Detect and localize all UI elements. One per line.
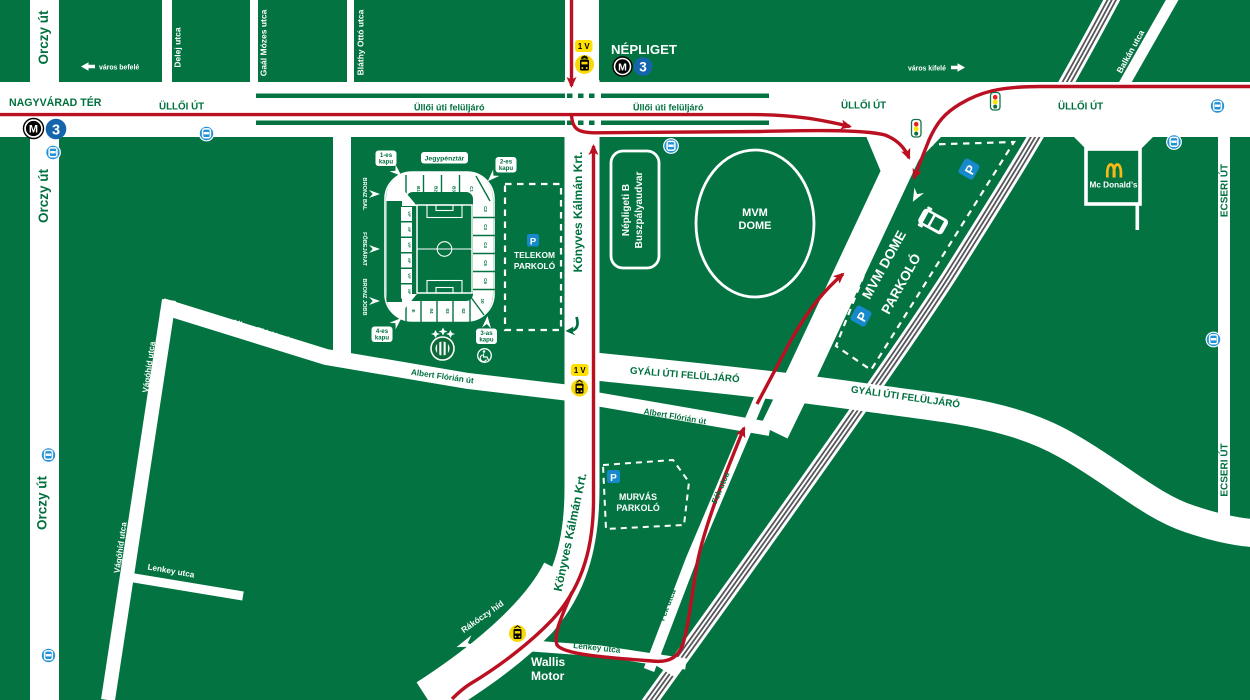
svg-text:BRONZ JOBB: BRONZ JOBB [361, 279, 367, 316]
svg-text:Könyves Kálmán Krt.: Könyves Kálmán Krt. [571, 152, 585, 273]
svg-text:P: P [530, 237, 537, 248]
svg-text:ÜLLŐI ÚT: ÜLLŐI ÚT [1058, 101, 1103, 113]
svg-text:Orczy út: Orczy út [36, 10, 51, 65]
svg-text:MURVÁS: MURVÁS [619, 492, 657, 502]
svg-text:04: 04 [429, 308, 434, 314]
svg-text:1 V: 1 V [574, 366, 587, 375]
svg-text:város kifelé: város kifelé [908, 65, 946, 72]
svg-text:Buszpályaudvar: Buszpályaudvar [634, 172, 645, 249]
svg-text:Mc Donald’s: Mc Donald’s [1090, 181, 1138, 190]
svg-text:FŐBEJÁRAT: FŐBEJÁRAT [361, 232, 368, 266]
svg-text:02: 02 [461, 308, 466, 314]
svg-text:P: P [610, 473, 617, 484]
svg-text:VIP: VIP [407, 289, 411, 295]
svg-text:C6: C6 [483, 278, 488, 284]
svg-text:VIP: VIP [407, 211, 411, 217]
svg-text:Orczy út: Orczy út [36, 168, 51, 223]
svg-text:M: M [618, 61, 627, 73]
svg-text:Orczy út: Orczy út [35, 475, 50, 530]
svg-text:Üllői úti felüljáró: Üllői úti felüljáró [414, 103, 485, 113]
svg-text:3: 3 [52, 123, 60, 139]
svg-text:város befelé: város befelé [99, 64, 139, 71]
svg-text:NAGYVÁRAD TÉR: NAGYVÁRAD TÉR [9, 96, 102, 109]
svg-text:3: 3 [639, 60, 647, 75]
svg-text:Népligeti B: Népligeti B [621, 184, 632, 236]
svg-text:VIP: VIP [407, 227, 411, 233]
svg-text:E: E [411, 309, 416, 312]
svg-text:B3: B3 [452, 186, 457, 192]
svg-text:ECSERI ÚT: ECSERI ÚT [1218, 443, 1231, 496]
svg-text:BRONZ BAL: BRONZ BAL [361, 178, 367, 212]
svg-text:C5: C5 [483, 260, 488, 266]
svg-text:Bláthy Ottó utca: Bláthy Ottó utca [356, 9, 366, 75]
svg-text:kapu: kapu [379, 159, 394, 166]
svg-text:VIP: VIP [407, 273, 411, 279]
svg-text:Gaál Mózes utca: Gaál Mózes utca [259, 9, 269, 76]
svg-text:C3: C3 [483, 224, 488, 230]
svg-text:03: 03 [445, 308, 450, 314]
svg-text:C2: C2 [483, 206, 488, 212]
svg-text:Delej utca: Delej utca [173, 27, 183, 67]
svg-text:ECSERI ÚT: ECSERI ÚT [1218, 164, 1231, 217]
svg-text:B2: B2 [434, 186, 439, 192]
svg-text:1 V: 1 V [578, 42, 591, 51]
svg-text:C4: C4 [483, 242, 488, 248]
svg-text:PARKOLÓ: PARKOLÓ [616, 502, 659, 513]
svg-text:B1: B1 [416, 186, 421, 192]
svg-text:kapu: kapu [499, 165, 514, 172]
svg-text:ÜLLŐI ÚT: ÜLLŐI ÚT [841, 100, 886, 112]
svg-text:VIP: VIP [407, 258, 411, 264]
svg-text:kapu: kapu [479, 337, 494, 344]
svg-text:M: M [29, 124, 38, 136]
svg-text:PARKOLÓ: PARKOLÓ [514, 260, 556, 271]
svg-text:C1: C1 [469, 186, 474, 192]
svg-text:Wallis: Wallis [531, 655, 566, 669]
svg-text:kapu: kapu [375, 335, 390, 342]
svg-text:Motor: Motor [531, 669, 565, 683]
svg-text:MVM: MVM [742, 207, 768, 219]
svg-text:ÜLLŐI ÚT: ÜLLŐI ÚT [159, 101, 204, 113]
svg-text:Üllői úti felüljáró: Üllői úti felüljáró [633, 103, 704, 113]
svg-text:VIP: VIP [407, 242, 411, 248]
svg-text:10: 10 [480, 298, 485, 304]
svg-text:TELEKOM: TELEKOM [514, 250, 555, 260]
svg-text:Jegypénztár: Jegypénztár [425, 156, 465, 163]
svg-text:NÉPLIGET: NÉPLIGET [611, 42, 677, 57]
svg-text:DOME: DOME [739, 220, 772, 232]
